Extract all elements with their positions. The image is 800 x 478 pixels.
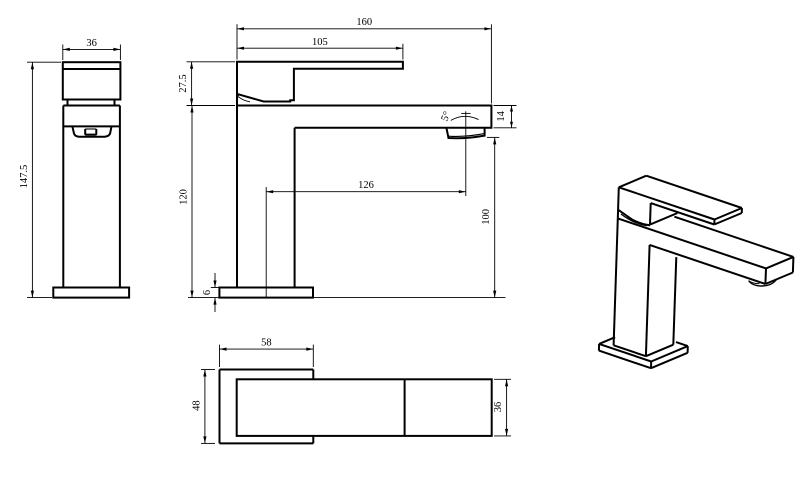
svg-text:120: 120: [178, 189, 189, 205]
svg-text:36: 36: [86, 38, 97, 49]
svg-text:58: 58: [261, 338, 272, 349]
svg-text:100: 100: [481, 209, 492, 225]
svg-text:27.5: 27.5: [178, 74, 189, 92]
svg-text:36: 36: [493, 402, 504, 413]
svg-text:6: 6: [202, 290, 213, 295]
svg-text:126: 126: [358, 180, 374, 191]
svg-text:160: 160: [356, 17, 372, 28]
svg-text:14: 14: [496, 110, 507, 121]
svg-text:5°: 5°: [440, 110, 454, 123]
svg-text:147.5: 147.5: [19, 165, 30, 189]
svg-text:48: 48: [191, 400, 202, 411]
svg-text:105: 105: [312, 37, 328, 48]
